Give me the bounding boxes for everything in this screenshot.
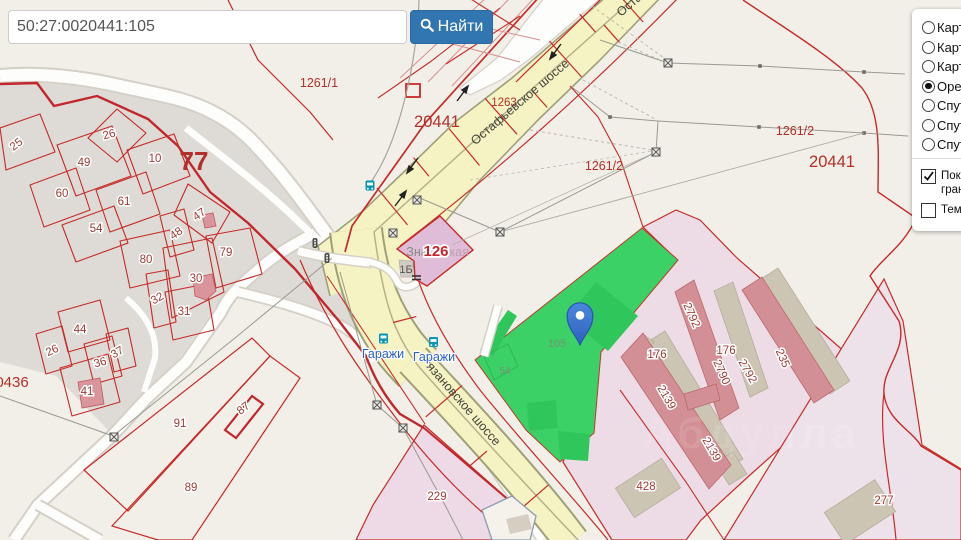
svg-text:Абдулла: Абдулла <box>642 409 860 458</box>
svg-text:Гаражи: Гаражи <box>362 347 404 361</box>
svg-text:79: 79 <box>220 247 233 259</box>
svg-text:229: 229 <box>427 491 446 503</box>
svg-text:41: 41 <box>81 386 94 398</box>
svg-text:10: 10 <box>149 153 162 165</box>
svg-text:91: 91 <box>174 418 187 430</box>
svg-text:20441: 20441 <box>809 153 855 171</box>
svg-text:1261/2: 1261/2 <box>776 124 814 138</box>
svg-text:54: 54 <box>499 366 511 377</box>
svg-text:30: 30 <box>190 273 203 285</box>
svg-text:105: 105 <box>548 338 566 350</box>
svg-text:277: 277 <box>874 495 893 507</box>
svg-text:89: 89 <box>185 482 198 494</box>
svg-text:Гаражи: Гаражи <box>413 350 455 364</box>
svg-text:80: 80 <box>140 254 153 266</box>
svg-text:49: 49 <box>78 157 91 169</box>
svg-text:1Б: 1Б <box>399 264 412 276</box>
svg-text:126: 126 <box>423 243 448 260</box>
svg-text:20436: 20436 <box>0 374 29 391</box>
svg-text:1261/1: 1261/1 <box>300 76 338 90</box>
svg-text:44: 44 <box>74 324 87 336</box>
svg-text:176: 176 <box>716 345 735 357</box>
svg-text:20441: 20441 <box>414 113 460 131</box>
svg-text:61: 61 <box>118 196 131 208</box>
svg-text:77: 77 <box>180 146 209 176</box>
svg-text:176: 176 <box>647 349 666 361</box>
svg-text:428: 428 <box>636 481 655 493</box>
svg-text:54: 54 <box>90 223 103 235</box>
svg-text:60: 60 <box>56 188 69 200</box>
svg-text:31: 31 <box>178 306 191 318</box>
svg-text:1261/2: 1261/2 <box>585 159 623 173</box>
